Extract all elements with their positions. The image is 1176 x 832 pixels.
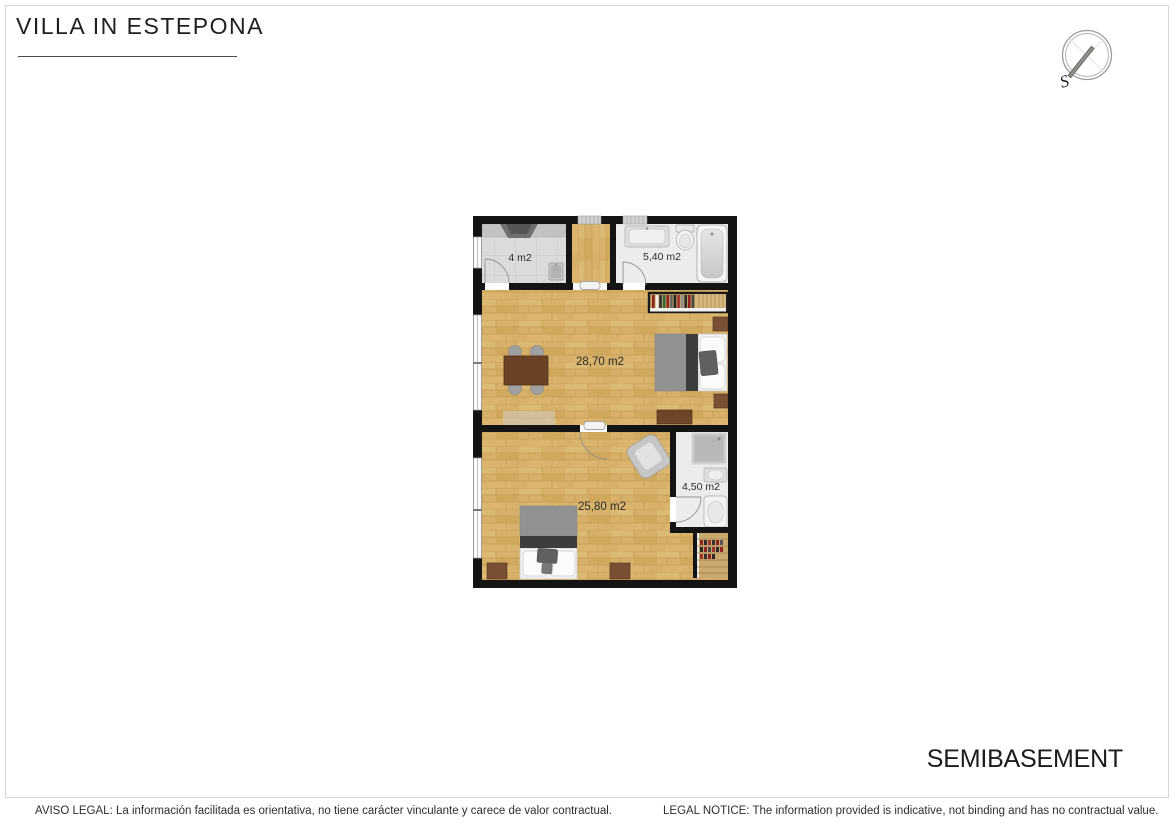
title-underline — [18, 56, 237, 57]
hallway-floor — [572, 224, 610, 283]
shower-tray — [692, 433, 726, 464]
page: VILLA IN ESTEPONA S — [0, 0, 1176, 832]
nightstand — [487, 563, 507, 579]
compass-icon — [1063, 31, 1112, 80]
window-kitchen — [474, 237, 482, 268]
bathroom-sink-vanity — [625, 226, 669, 247]
double-bed-bedroom — [520, 506, 577, 579]
wardrobe-bottom — [697, 533, 728, 578]
window-living — [474, 315, 482, 410]
kitchen-sink — [549, 263, 563, 280]
bathtub-icon — [697, 225, 727, 282]
toilet-bottom-icon — [704, 496, 727, 527]
legal-notice-en: LEGAL NOTICE: The information provided i… — [663, 805, 1158, 817]
room-area-label-bathroom-bottom: 4,50 m2 — [682, 481, 720, 493]
room-area-label-living: 28,70 m2 — [576, 356, 624, 368]
floor-plan: 4 m2 5,40 m2 28,70 m2 25,80 m2 4,50 m2 — [473, 215, 737, 589]
room-area-label-bathroom-top: 5,40 m2 — [643, 251, 681, 263]
dining-table — [504, 356, 548, 385]
door-gap-kitchen — [485, 283, 509, 290]
nightstand — [714, 394, 728, 408]
legal-notice-es: AVISO LEGAL: La información facilitada e… — [35, 805, 612, 817]
nightstand — [713, 317, 728, 331]
compass: S — [1056, 24, 1122, 94]
nightstand — [610, 563, 630, 579]
closet-wall — [693, 533, 697, 578]
window-bedroom — [474, 458, 482, 558]
dresser — [657, 410, 692, 424]
toilet-icon — [676, 225, 694, 250]
bathroom-bottom-sink — [704, 468, 727, 482]
kitchen-counter — [482, 224, 566, 238]
wardrobe-top — [649, 293, 727, 312]
entry-opening — [578, 216, 601, 224]
floor-name-label: SEMIBASEMENT — [927, 745, 1123, 774]
area-rug — [503, 411, 555, 425]
double-bed-living — [655, 334, 727, 391]
door-gap-bathroom-top — [623, 283, 645, 290]
door-gap-bathroom-bottom — [670, 497, 676, 522]
room-area-label-bedroom: 25,80 m2 — [578, 501, 626, 513]
room-area-label-kitchen: 4 m2 — [508, 252, 532, 264]
page-title: VILLA IN ESTEPONA — [16, 13, 264, 40]
window-bathroom-top — [623, 216, 647, 224]
